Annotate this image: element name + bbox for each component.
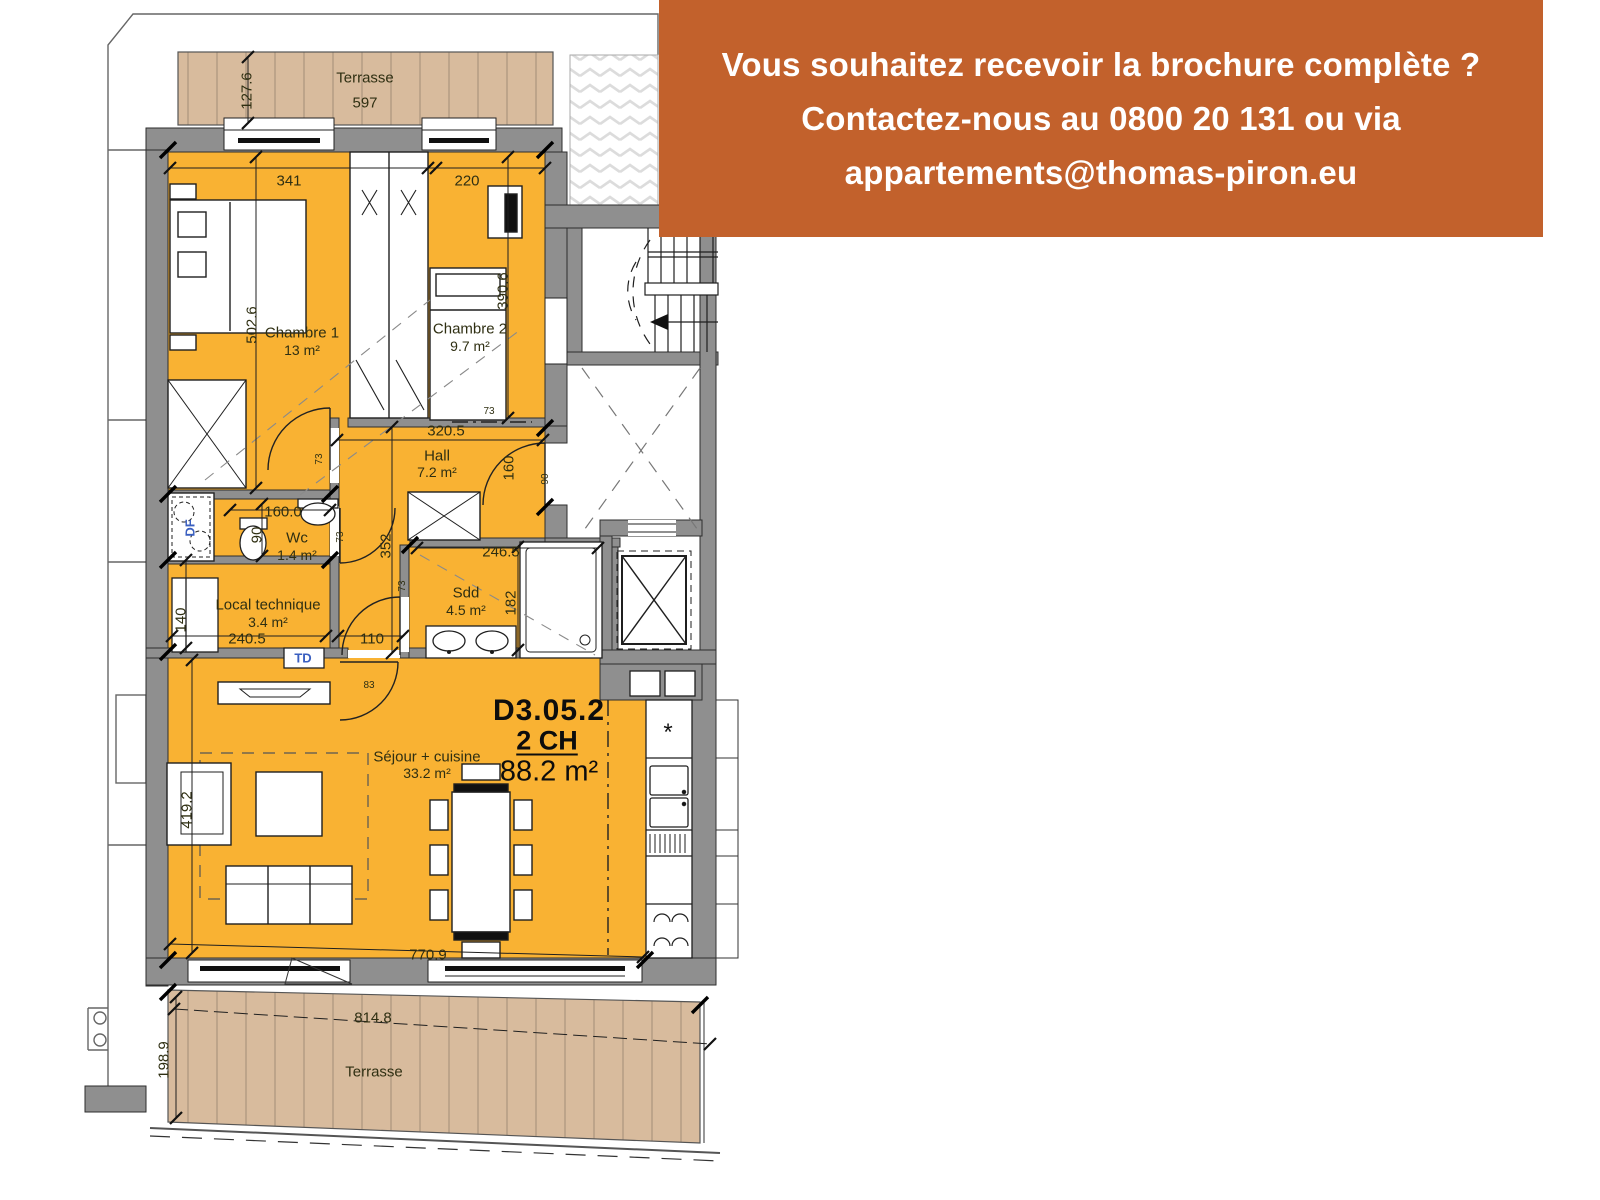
window-chambre2-niche (545, 298, 567, 364)
dim-corridor-width: 110 (360, 632, 384, 647)
dim-door-73-b: 73 (315, 453, 325, 464)
closet-column (350, 152, 428, 418)
banner-line-3[interactable]: appartements@thomas-piron.eu (845, 146, 1358, 200)
apartment-total-area: 88.2 m² (500, 758, 598, 787)
dim-door-83: 83 (363, 681, 374, 691)
window-chambre1 (224, 118, 334, 150)
dim-local-depth: 140 (174, 607, 189, 632)
dim-chambre2-depth: 390.6 (496, 272, 511, 310)
dim-door-73-d: 73 (398, 580, 408, 591)
chambre1-area: 13 m² (284, 343, 320, 357)
dim-wc-width: 160.0 (264, 505, 302, 520)
window-sejour-left (188, 958, 352, 984)
wc-area: 1.4 m² (277, 548, 317, 562)
dim-wc-depth: 90 (250, 527, 265, 544)
df-label: DF (184, 519, 197, 536)
dim-sdd-depth: 182 (504, 590, 519, 615)
brochure-banner: Vous souhaitez recevoir la brochure comp… (659, 0, 1543, 237)
page: Terrasse 597 127.6 341 220 502.6 Chambre… (0, 0, 1600, 1200)
sdd-label: Sdd (453, 586, 480, 601)
dim-hall-width: 320.5 (427, 424, 465, 439)
terrace-bottom (150, 990, 720, 1161)
terrace-bottom-label: Terrasse (345, 1065, 403, 1080)
apartment-code: D3.05.2 (493, 696, 605, 726)
window-chambre2 (422, 118, 496, 150)
terrace-top-width: 597 (352, 96, 377, 111)
sdd-area: 4.5 m² (446, 603, 486, 617)
dim-door-73-c: 73 (336, 531, 346, 542)
dim-door-73-a: 73 (483, 407, 494, 417)
window-sejour-right (428, 960, 642, 982)
banner-line-2: Contactez-nous au 0800 20 131 ou via (801, 92, 1401, 146)
kitchen-star: * (663, 721, 672, 745)
hatched-area (570, 55, 658, 205)
td-label: TD (294, 652, 311, 665)
chambre1-label: Chambre 1 (265, 326, 339, 341)
banner-line-1: Vous souhaitez recevoir la brochure comp… (722, 38, 1481, 92)
hall-cabinet (408, 492, 480, 540)
chambre2-label: Chambre 2 (433, 322, 507, 337)
local-technique-label: Local technique (215, 598, 320, 613)
apartment-bedrooms: 2 CH (516, 728, 578, 755)
local-technique-area: 3.4 m² (248, 615, 288, 629)
neighbour-strip (716, 700, 738, 958)
dim-chambre1-depth: 502.6 (245, 306, 260, 344)
dim-corridor-depth: 352 (379, 533, 394, 558)
dim-terrace-top-depth: 127.6 (240, 72, 255, 110)
terrace-top (178, 52, 553, 125)
dim-sdd-width: 246.5 (482, 545, 520, 560)
dim-terrace-bottom-width: 814.8 (354, 1011, 392, 1026)
chambre2-area: 9.7 m² (450, 339, 490, 353)
dim-window-chambre2: 220 (454, 174, 479, 189)
hall-area: 7.2 m² (417, 465, 457, 479)
hall-label: Hall (424, 449, 450, 464)
elevator (617, 551, 691, 649)
terrace-top-label: Terrasse (336, 71, 394, 86)
dim-local-width: 240.5 (228, 632, 266, 647)
landing (582, 368, 700, 533)
dim-window-chambre1: 341 (276, 174, 301, 189)
dim-sejour-depth: 419.2 (180, 791, 195, 829)
dim-door-90: 90 (541, 473, 551, 484)
sejour-area: 33.2 m² (403, 766, 450, 780)
sejour-label: Séjour + cuisine (373, 750, 480, 765)
dim-entrance-door: 160 (502, 455, 517, 480)
dim-terrace-bottom-depth: 198.9 (157, 1041, 172, 1079)
wc-label: Wc (286, 531, 308, 546)
dim-sejour-width: 770.9 (409, 948, 447, 963)
